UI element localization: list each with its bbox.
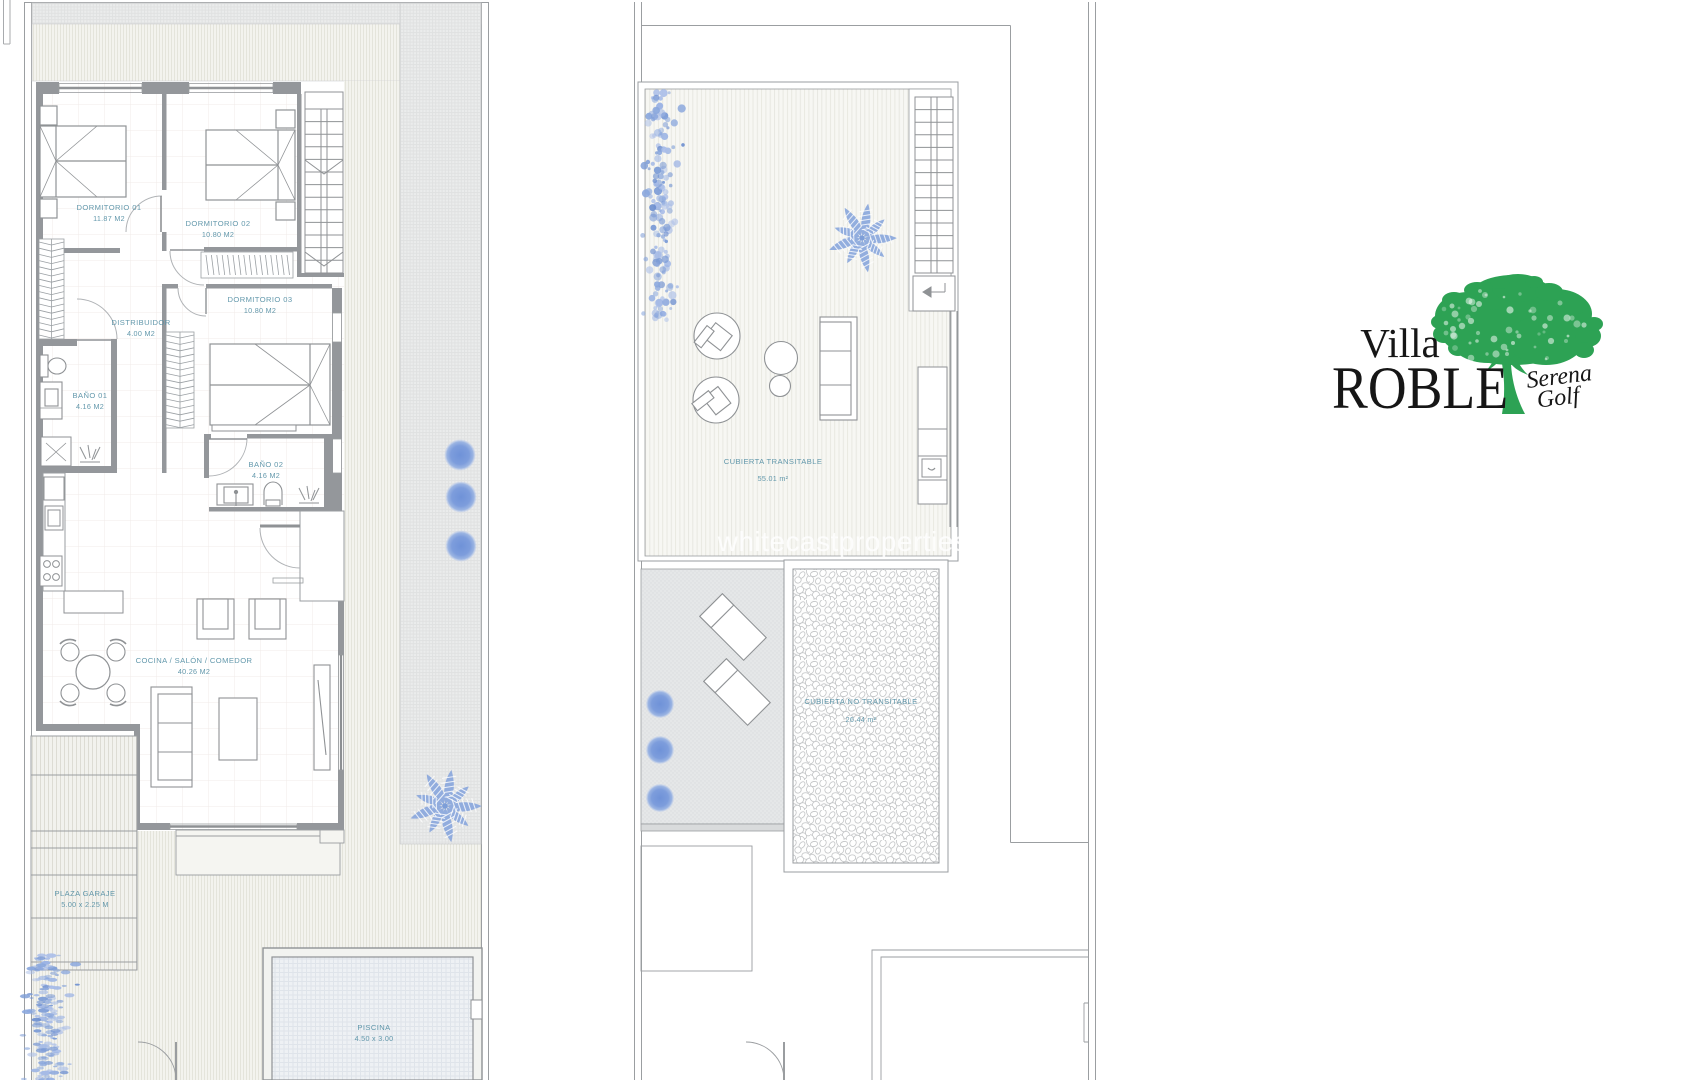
svg-text:11.87 M2: 11.87 M2 — [93, 214, 125, 223]
svg-text:5.00 x 2.25 M: 5.00 x 2.25 M — [61, 900, 108, 909]
svg-text:COCINA / SALÓN / COMEDOR: COCINA / SALÓN / COMEDOR — [136, 656, 253, 665]
svg-text:40.26 M2: 40.26 M2 — [178, 667, 210, 676]
svg-text:4.16 M2: 4.16 M2 — [252, 471, 280, 480]
svg-text:CUBIERTA NO TRANSITABLE: CUBIERTA NO TRANSITABLE — [804, 697, 917, 706]
svg-text:PISCINA: PISCINA — [357, 1023, 391, 1032]
svg-text:whitecastproperties: whitecastproperties — [717, 526, 969, 557]
svg-text:26.44 m²: 26.44 m² — [846, 715, 877, 724]
svg-text:10.80 M2: 10.80 M2 — [202, 230, 234, 239]
svg-text:4.00 M2: 4.00 M2 — [127, 329, 155, 338]
svg-text:CUBIERTA TRANSITABLE: CUBIERTA TRANSITABLE — [724, 457, 823, 466]
svg-text:DORMITORIO 01: DORMITORIO 01 — [77, 203, 142, 212]
svg-text:4.50 x 3.00: 4.50 x 3.00 — [355, 1034, 394, 1043]
svg-text:4.16 M2: 4.16 M2 — [76, 402, 104, 411]
svg-text:Golf: Golf — [1535, 382, 1584, 413]
svg-text:55.01 m²: 55.01 m² — [758, 474, 789, 483]
svg-text:ROBLE: ROBLE — [1332, 355, 1508, 421]
svg-text:10.80 M2: 10.80 M2 — [244, 306, 276, 315]
svg-text:DORMITORIO 03: DORMITORIO 03 — [228, 295, 293, 304]
svg-text:PLAZA GARAJE: PLAZA GARAJE — [55, 889, 116, 898]
svg-text:BAÑO 01: BAÑO 01 — [73, 391, 108, 400]
svg-text:DORMITORIO 02: DORMITORIO 02 — [186, 219, 251, 228]
svg-text:DISTRIBUIDOR: DISTRIBUIDOR — [111, 318, 170, 327]
svg-text:BAÑO 02: BAÑO 02 — [249, 460, 284, 469]
